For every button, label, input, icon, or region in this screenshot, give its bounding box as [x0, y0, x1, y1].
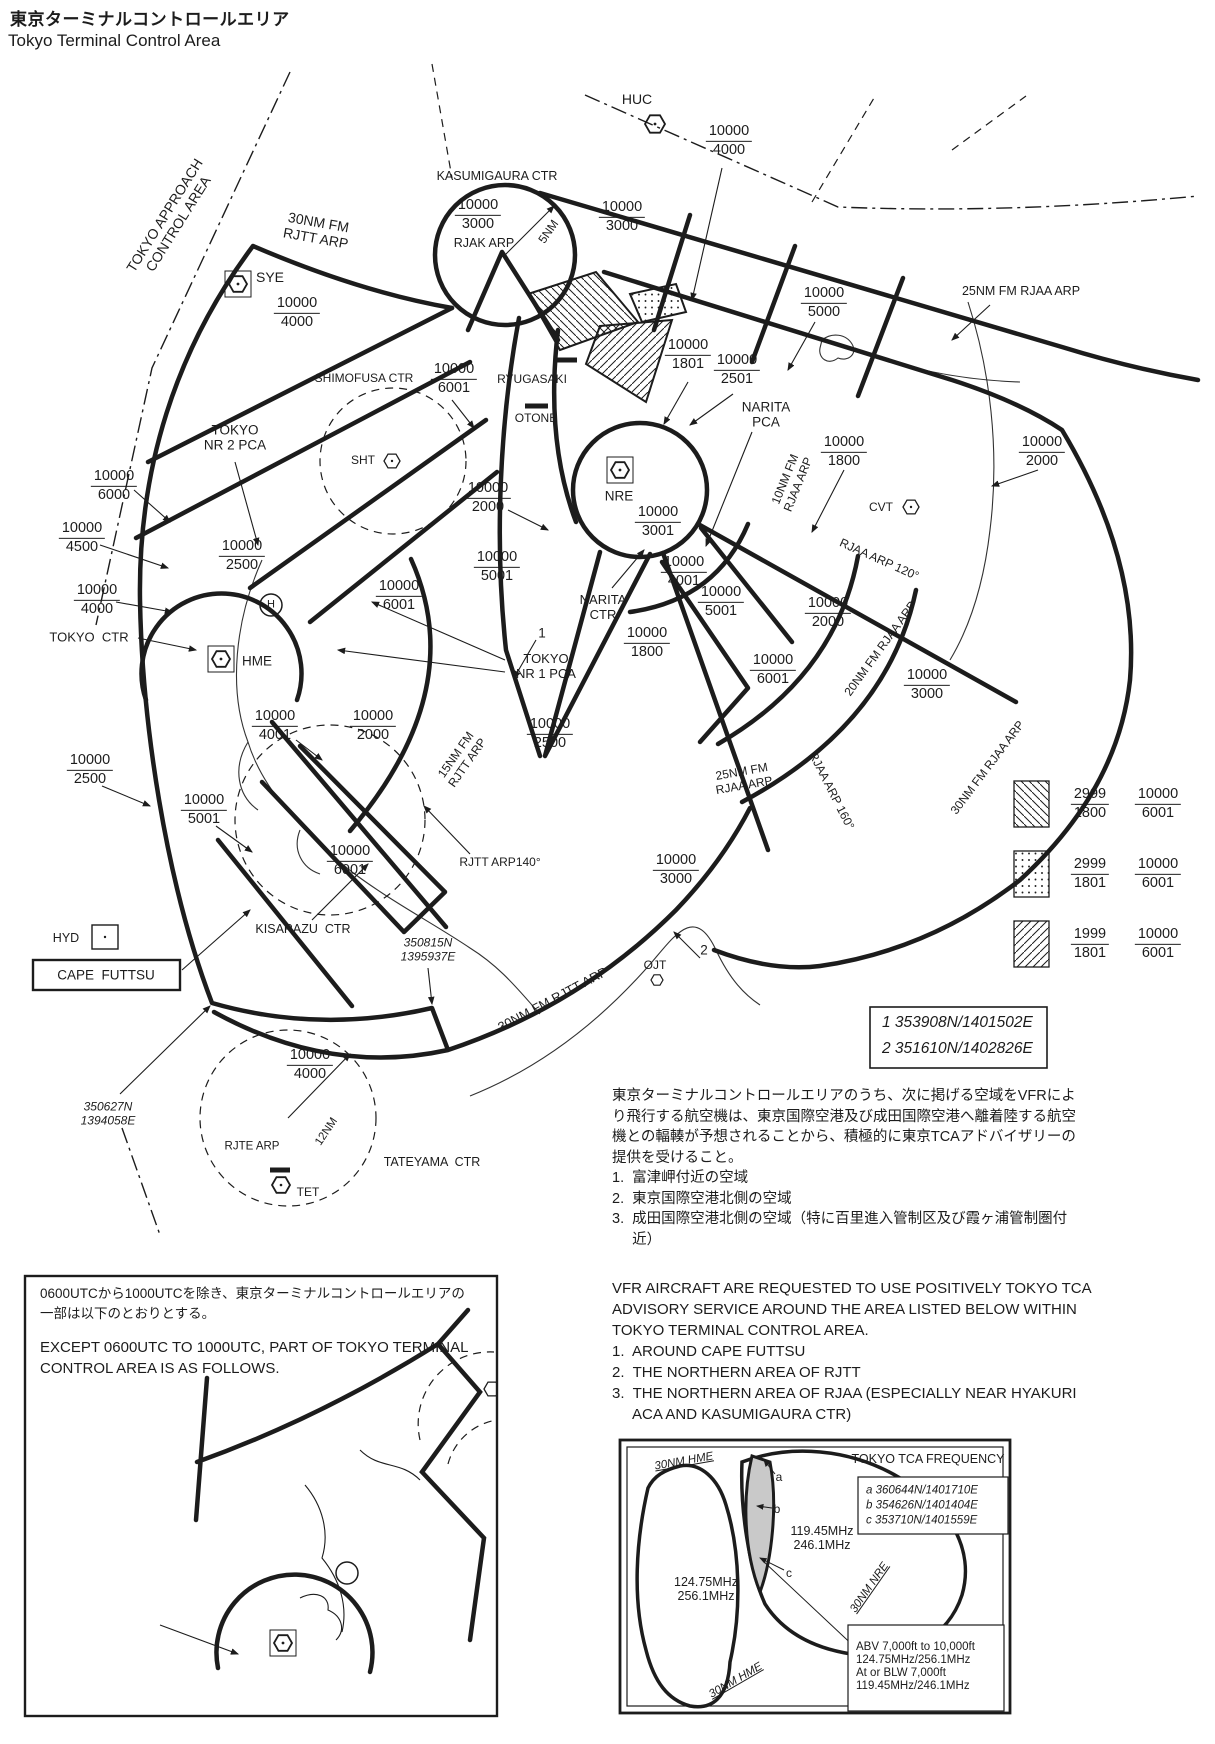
fraction-lower: 1801 [1071, 945, 1109, 962]
fraction-lower: 3001 [635, 523, 681, 540]
label-sht: SHT [351, 454, 375, 468]
altitude-fraction: 100004000 [287, 1048, 333, 1082]
altitude-fraction: 100005001 [181, 793, 227, 827]
altitude-fraction: 100004000 [74, 583, 120, 617]
label-rjte-arp: RJTE ARP [225, 1140, 280, 1153]
fraction-lower: 2000 [1019, 453, 1065, 470]
fraction-upper: 10000 [801, 286, 847, 304]
fraction-lower: 4000 [274, 314, 320, 331]
fraction-upper: 10000 [1135, 857, 1181, 875]
altitude-fraction: 100003000 [455, 198, 501, 232]
altitude-fraction: 100002000 [350, 709, 396, 743]
label-kasumigaura-ctr: KASUMIGAURA CTR [437, 169, 558, 183]
fraction-lower: 6001 [431, 380, 477, 397]
fraction-upper: 10000 [67, 753, 113, 771]
fraction-lower: 6000 [91, 487, 137, 504]
fraction-lower: 6001 [376, 597, 422, 614]
fraction-lower: 1801 [665, 356, 711, 373]
label-hyd: HYD [53, 931, 79, 945]
label-25nm-fm-rjaa-arp-top: 25NM FM RJAA ARP [962, 284, 1080, 298]
fraction-lower: 4001 [252, 727, 298, 744]
fraction-lower: 4000 [287, 1066, 333, 1083]
label-5nm: 5NM [536, 218, 562, 247]
fraction-upper: 10000 [821, 435, 867, 453]
fraction-upper: 10000 [252, 709, 298, 727]
label-huc: HUC [622, 92, 652, 108]
fraction-upper: 10000 [431, 362, 477, 380]
fraction-lower: 3000 [904, 686, 950, 703]
label-tokyo-nr-1-pca: TOKYO NR 1 PCA [516, 652, 576, 682]
fraction-upper: 10000 [181, 793, 227, 811]
fraction-upper: 10000 [74, 583, 120, 601]
fraction-upper: 10000 [350, 709, 396, 727]
label-tokyo-ctr: TOKYO CTR [49, 631, 128, 646]
altitude-fraction: 100002500 [219, 539, 265, 573]
fraction-lower: 5001 [181, 811, 227, 828]
freq-coord-a: a 360644N/1401710E [866, 1484, 978, 1497]
label-tokyo-nr-2-pca: TOKYO NR 2 PCA [204, 423, 266, 454]
label-nre: NRE [605, 488, 634, 503]
fraction-lower: 1800 [624, 644, 670, 661]
fraction-upper: 10000 [661, 555, 707, 573]
fraction-upper: 10000 [59, 521, 105, 539]
fraction-upper: 10000 [698, 585, 744, 603]
legend-fraction: 29991800 [1071, 787, 1109, 821]
altitude-fraction: 100003000 [653, 853, 699, 887]
legend-fraction: 100006001 [1135, 787, 1181, 821]
coord-box-line-2: 2 351610N/1402826E [882, 1040, 1033, 1058]
freq-marker-b: b [774, 1503, 781, 1517]
fraction-lower: 6001 [1135, 875, 1181, 892]
fraction-upper: 10000 [706, 124, 752, 142]
fraction-lower: 3000 [455, 216, 501, 233]
altitude-fraction: 100005000 [801, 286, 847, 320]
inset-note-english: EXCEPT 0600UTC TO 1000UTC, PART OF TOKYO… [40, 1337, 468, 1379]
fraction-lower: 1800 [821, 453, 867, 470]
altitude-fraction: 100006001 [431, 362, 477, 396]
altitude-fraction: 100001800 [821, 435, 867, 469]
altitude-fraction: 100006001 [327, 844, 373, 878]
fraction-lower: 4000 [706, 142, 752, 159]
fraction-lower: 2501 [714, 371, 760, 388]
legend-fraction: 29991801 [1071, 857, 1109, 891]
label-tokyo-approach-control-area: TOKYO APPROACH CONTROL AREA [124, 156, 220, 284]
fraction-upper: 10000 [904, 668, 950, 686]
fraction-lower: 1800 [1071, 805, 1109, 822]
freq-coord-b: b 354626N/1401404E [866, 1499, 978, 1512]
legend-fraction: 19991801 [1071, 927, 1109, 961]
label-30nm-fm-rjtt-arp-bottom: 30NM FM RJTT ARP [496, 965, 611, 1035]
label-cvt: CVT [869, 501, 893, 515]
altitude-fraction: 100002500 [527, 717, 573, 751]
label-narita-ctr: NARITA CTR [580, 593, 627, 623]
label-tateyama-ctr: TATEYAMA CTR [384, 1155, 481, 1169]
altitude-fraction: 100003000 [904, 668, 950, 702]
altitude-fraction: 100004001 [252, 709, 298, 743]
freq-marker-c: c [786, 1567, 792, 1581]
fraction-lower: 2000 [465, 499, 511, 516]
legend-fraction: 100006001 [1135, 927, 1181, 961]
altitude-fraction: 100005001 [698, 585, 744, 619]
altitude-fraction: 100003001 [635, 505, 681, 539]
freq-value-west: 124.75MHz 256.1MHz [674, 1575, 738, 1604]
altitude-fraction: 100004500 [59, 521, 105, 555]
label-hme: HME [242, 653, 272, 668]
fraction-lower: 6001 [1135, 945, 1181, 962]
fraction-upper: 10000 [455, 198, 501, 216]
legend-fraction: 100006001 [1135, 857, 1181, 891]
fraction-upper: 10000 [91, 469, 137, 487]
freq-label-30nm-nre: 30NM NRE [848, 1560, 892, 1615]
altitude-fraction: 100004000 [274, 296, 320, 330]
fraction-upper: 10000 [635, 505, 681, 523]
altitude-fraction: 100003000 [599, 200, 645, 234]
inset-note-japanese: 0600UTCから1000UTCを除き、東京ターミナルコントロールエリアの 一部… [40, 1284, 465, 1324]
label-point-2: 2 [700, 942, 708, 957]
fraction-lower: 1801 [1071, 875, 1109, 892]
altitude-fraction: 100006000 [91, 469, 137, 503]
freq-label-30nm-hme-bottom: 30NM HME [707, 1660, 765, 1701]
label-rjtt-arp140: RJTT ARP140° [459, 856, 540, 870]
freq-marker-a: a [776, 1471, 783, 1485]
fraction-upper: 10000 [750, 653, 796, 671]
fraction-upper: 10000 [653, 853, 699, 871]
freq-box-title: TOKYO TCA FREQUENCY [851, 1452, 1004, 1466]
label-sye: SYE [256, 270, 284, 286]
fraction-upper: 10000 [1135, 787, 1181, 805]
label-rjaa-arp-120: RJAA ARP 120° [837, 536, 920, 583]
advisory-note-english: VFR AIRCRAFT ARE REQUESTED TO USE POSITI… [612, 1278, 1092, 1425]
fraction-lower: 5000 [801, 304, 847, 321]
fraction-lower: 2500 [67, 771, 113, 788]
freq-altitude-note: ABV 7,000ft to 10,000ft 124.75MHz/256.1M… [856, 1641, 975, 1693]
altitude-fraction: 100002501 [714, 353, 760, 387]
tokyo-tca-chart-page: { "title": {"ja": "東京ターミナルコントロールエリア", "e… [0, 0, 1215, 1744]
altitude-fraction: 100002000 [805, 596, 851, 630]
label-ojt: OJT [644, 959, 667, 973]
freq-label-30nm-hme-top: 30NM HME [654, 1450, 715, 1473]
fraction-lower: 5001 [698, 603, 744, 620]
fraction-lower: 2500 [527, 735, 573, 752]
label-cape-futtsu: CAPE FUTTSU [57, 967, 155, 982]
fraction-upper: 10000 [624, 626, 670, 644]
fraction-upper: 10000 [219, 539, 265, 557]
altitude-fraction: 100002000 [465, 481, 511, 515]
label-otone: OTONE [515, 412, 557, 426]
label-rjaa-arp-160: RJAA ARP 160° [806, 750, 857, 832]
altitude-fraction: 100006001 [750, 653, 796, 687]
fraction-upper: 10000 [805, 596, 851, 614]
label-30nm-fm-rjtt-arp-top: 30NM FM RJTT ARP [282, 210, 352, 253]
fraction-lower: 2500 [219, 557, 265, 574]
fraction-upper: 10000 [274, 296, 320, 314]
label-25nm-fm-rjaa-arp: 25NM FM RJAA ARP [712, 761, 773, 798]
altitude-fraction: 100002500 [67, 753, 113, 787]
fraction-lower: 2000 [350, 727, 396, 744]
coord-box-line-1: 1 353908N/1401502E [882, 1014, 1033, 1032]
fraction-upper: 10000 [465, 481, 511, 499]
label-coord-350627n: 350627N 1394058E [81, 1100, 136, 1127]
label-shimofusa-ctr: SHIMOFUSA CTR [315, 372, 414, 386]
fraction-lower: 6001 [327, 862, 373, 879]
fraction-upper: 2999 [1071, 857, 1109, 875]
label-kisarazu-ctr: KISARAZU CTR [255, 922, 350, 936]
inset-map-overlay: 0600UTCから1000UTCを除き、東京ターミナルコントロールエリアの 一部… [25, 1276, 497, 1716]
label-15nm-fm-rjtt-arp: 15NM FM RJTT ARP [435, 728, 490, 790]
altitude-fraction: 100005001 [474, 550, 520, 584]
fraction-upper: 10000 [287, 1048, 333, 1066]
fraction-upper: 10000 [474, 550, 520, 568]
altitude-fraction: 100006001 [376, 579, 422, 613]
fraction-upper: 10000 [665, 338, 711, 356]
fraction-upper: 10000 [527, 717, 573, 735]
fraction-upper: 10000 [714, 353, 760, 371]
fraction-upper: 1999 [1071, 927, 1109, 945]
fraction-upper: 10000 [327, 844, 373, 862]
fraction-lower: 2000 [805, 614, 851, 631]
label-heliport-h: H [267, 599, 275, 612]
page-title-english: Tokyo Terminal Control Area [8, 31, 220, 51]
label-12nm: 12NM [313, 1116, 341, 1149]
page-title-japanese: 東京ターミナルコントロールエリア [10, 5, 290, 30]
fraction-lower: 3000 [653, 871, 699, 888]
freq-value-northeast: 119.45MHz 246.1MHz [791, 1524, 854, 1553]
fraction-upper: 10000 [376, 579, 422, 597]
fraction-lower: 4500 [59, 539, 105, 556]
fraction-upper: 10000 [1135, 927, 1181, 945]
fraction-lower: 5001 [474, 568, 520, 585]
fraction-lower: 3000 [599, 218, 645, 235]
freq-coord-c: c 353710N/1401559E [866, 1514, 977, 1527]
label-point-1: 1 [538, 625, 546, 640]
label-30nm-fm-rjaa-arp: 30NM FM RJAA ARP [948, 719, 1027, 818]
advisory-note-japanese: 東京ターミナルコントロールエリアのうち、次に掲げる空域をVFRによ り飛行する航… [612, 1086, 1076, 1250]
altitude-fraction: 100001800 [624, 626, 670, 660]
label-ryugasaki: RYUGASAKI [497, 373, 567, 387]
fraction-lower: 6001 [750, 671, 796, 688]
label-coord-350815n: 350815N 1395937E [401, 936, 456, 963]
label-narita-pca: NARITA PCA [742, 400, 791, 431]
altitude-fraction: 100004000 [706, 124, 752, 158]
fraction-lower: 4000 [74, 601, 120, 618]
fraction-lower: 6001 [1135, 805, 1181, 822]
fraction-upper: 2999 [1071, 787, 1109, 805]
label-10nm-fm-rjaa-arp: 10NM FM RJAA ARP [769, 450, 816, 513]
altitude-fraction: 100002000 [1019, 435, 1065, 469]
label-rjak-arp: RJAK ARP [454, 236, 514, 250]
label-tet: TET [297, 1186, 320, 1200]
fraction-upper: 10000 [1019, 435, 1065, 453]
altitude-fraction: 100001801 [665, 338, 711, 372]
fraction-upper: 10000 [599, 200, 645, 218]
